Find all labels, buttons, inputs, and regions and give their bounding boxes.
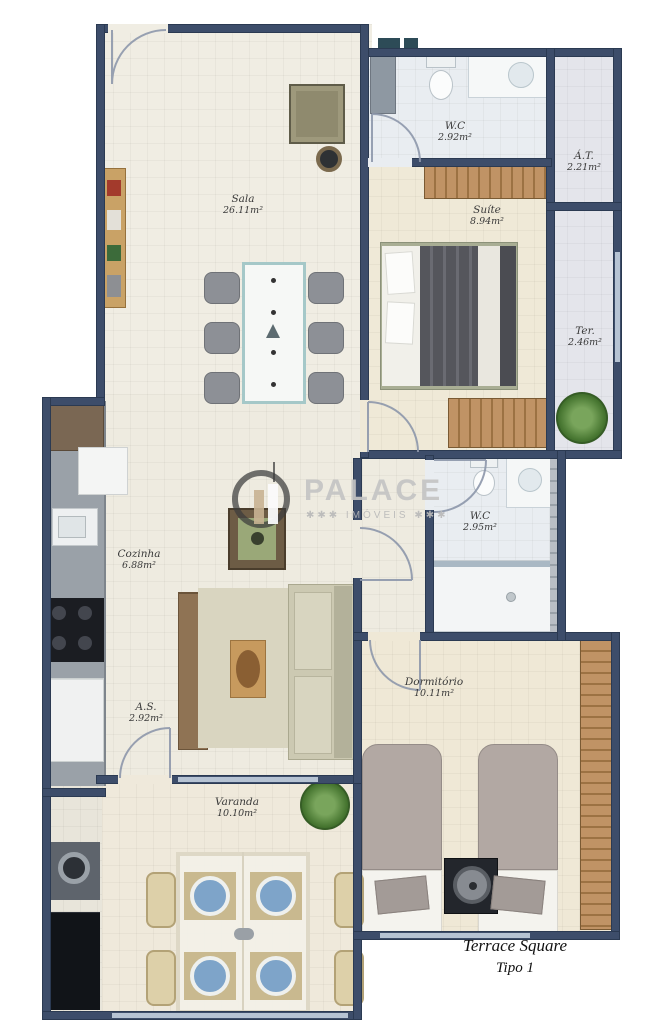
plan-title-line1: Terrace Square — [420, 934, 610, 958]
watermark-building — [254, 490, 264, 524]
varanda-label: Varanda 10.10m² — [187, 796, 287, 819]
at-label: Á.T. 2.21m² — [549, 150, 619, 173]
door-arc — [112, 30, 166, 84]
wc1-label: W.C 2.92m² — [415, 120, 495, 143]
cozinha-label: Cozinha 6.88m² — [102, 548, 176, 571]
watermark: PALACE ✱✱✱ IMÓVEIS ✱✱✱ — [232, 458, 452, 553]
wc2-label: W.C 2.95m² — [440, 510, 520, 533]
watermark-sub: ✱✱✱ IMÓVEIS ✱✱✱ — [306, 510, 449, 521]
sala-label: Sala 26.11m² — [193, 193, 293, 216]
door-arc — [120, 728, 170, 778]
door-arc — [372, 114, 420, 162]
watermark-spire — [273, 462, 275, 482]
suite-label: Suíte 8.94m² — [447, 204, 527, 227]
door-arc — [368, 402, 418, 452]
plan-title-line2: Tipo 1 — [420, 958, 610, 978]
watermark-building — [268, 484, 278, 524]
ter-label: Ter. 2.46m² — [550, 325, 620, 348]
as-label: A.S. 2.92m² — [111, 701, 181, 724]
floorplan-canvas: Sala 26.11m² W.C 2.92m² Suíte 8.94m² Á.T… — [0, 0, 658, 1024]
plan-title: Terrace Square Tipo 1 — [420, 934, 610, 978]
watermark-brand: PALACE — [304, 474, 443, 508]
dormitorio-label: Dormitório 10.11m² — [378, 676, 490, 699]
